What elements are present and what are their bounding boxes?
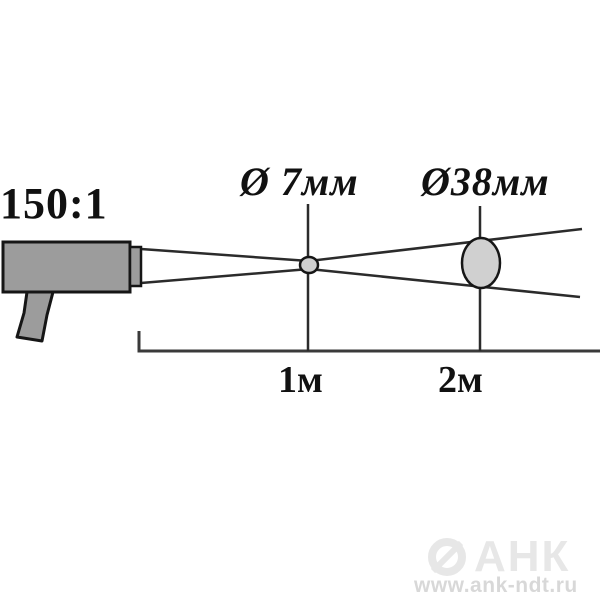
spot-diameter-label-2m: Ø38мм [421,158,550,205]
watermark-brand-text: АНК [474,537,570,577]
spot-diameter-label-1m: Ø 7мм [240,158,359,205]
beam-line-lower-converging [141,269,309,283]
distance-axis [139,331,600,351]
watermark-url: www.ank-ndt.ru [414,574,578,598]
optics-ratio-label: 150:1 [0,178,108,229]
pyrometer-lens [130,247,141,286]
watermark: АНК www.ank-ndt.ru [414,536,594,598]
beam-line-lower-diverging [309,269,580,297]
ank-logo-icon [424,536,470,578]
diagram-graphics [0,0,600,600]
spot-ellipse-2m [462,238,500,288]
focus-spot-1m [300,257,318,273]
beam-line-upper-converging [141,249,309,261]
optical-spot-diagram: 150:1 Ø 7мм Ø38мм 1м 2м АНК www.ank-ndt.… [0,0,600,600]
distance-label-1m: 1м [278,358,323,402]
watermark-brand-row: АНК [424,536,570,578]
distance-label-2m: 2м [438,358,483,402]
pyrometer-handle [17,292,53,341]
pyrometer-body [3,242,130,292]
beam-line-upper-diverging [309,229,582,261]
